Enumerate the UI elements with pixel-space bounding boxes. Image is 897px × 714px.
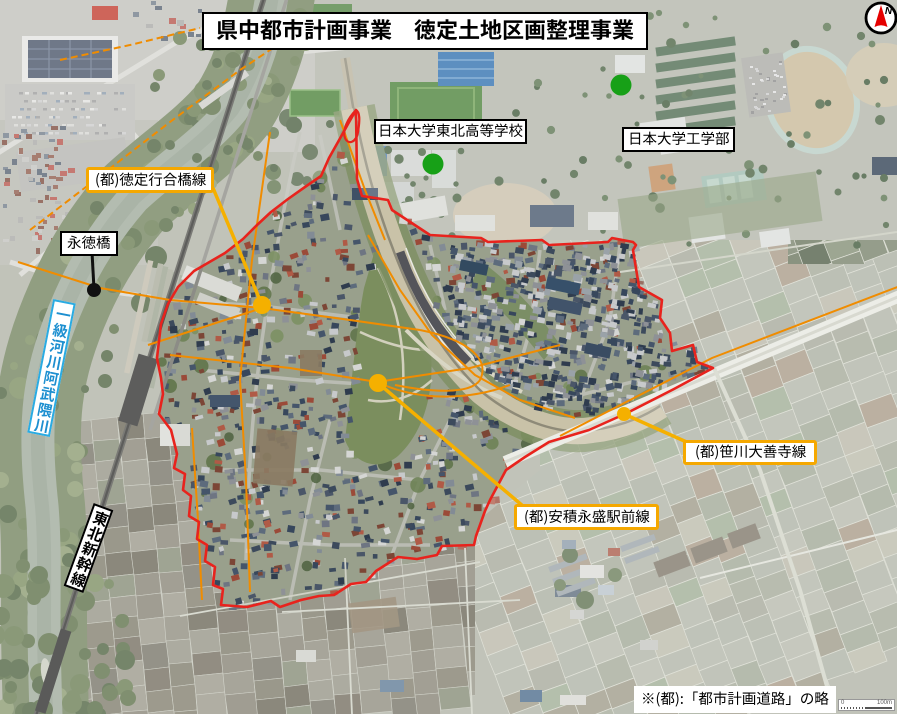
svg-text:N: N [885, 6, 893, 17]
